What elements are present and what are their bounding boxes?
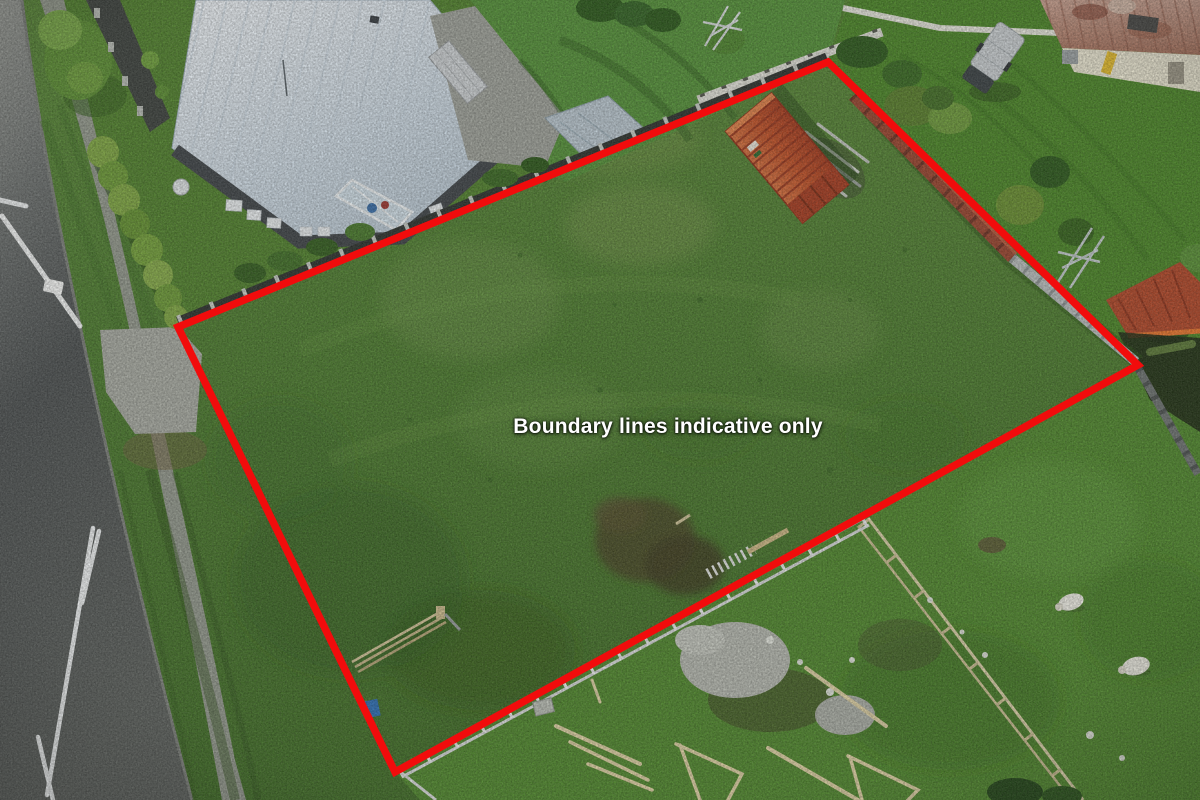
photo-canvas	[0, 0, 1200, 800]
aerial-photo: Boundary lines indicative only	[0, 0, 1200, 800]
vignette	[0, 0, 1200, 800]
